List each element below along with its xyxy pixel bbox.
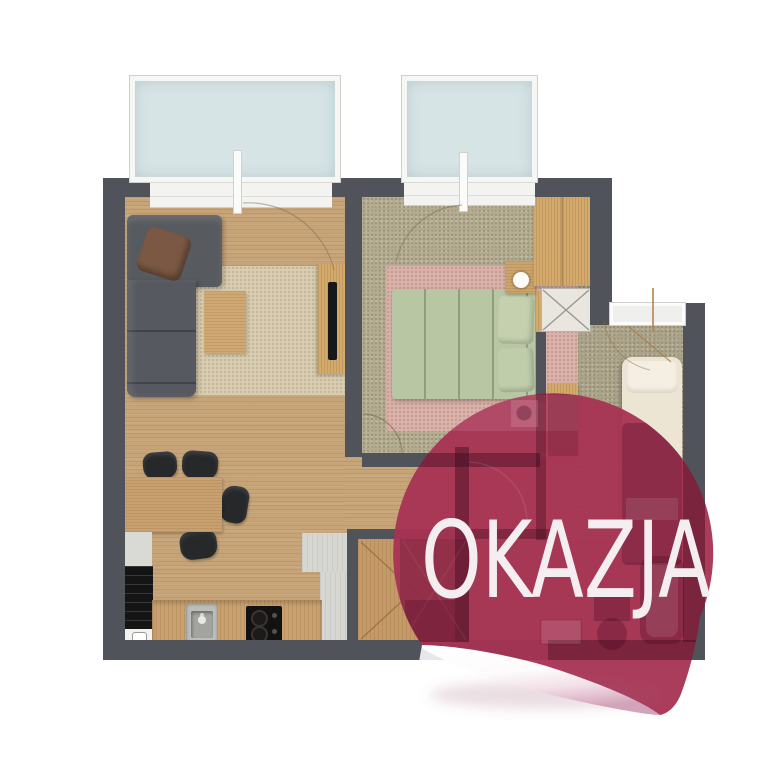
door-arc-living <box>243 203 334 270</box>
door-arc-bedroom-door <box>364 414 402 453</box>
badge-text: OKAZJA <box>421 499 711 622</box>
floorplan-canvas: OKAZJA <box>0 0 768 768</box>
small-room-diagonal <box>628 326 671 362</box>
ghost-washbasin <box>541 620 581 644</box>
ghost-washer-drum <box>517 406 532 421</box>
overlay-graphics: OKAZJA <box>0 0 768 768</box>
ghost-cabinet <box>548 390 578 456</box>
small-room-arc <box>604 322 650 370</box>
ghost-wall-bedroom <box>362 453 540 467</box>
okazja-badge: OKAZJA <box>362 390 713 768</box>
ghost-toilet-bowl <box>597 618 627 650</box>
door-arc-bedroom <box>396 205 462 262</box>
